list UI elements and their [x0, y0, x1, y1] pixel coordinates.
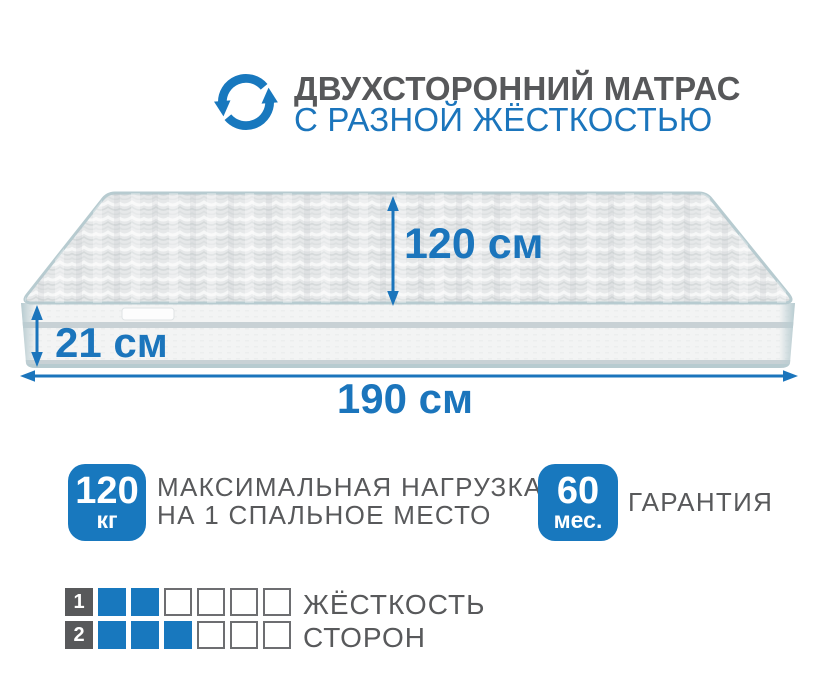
max-load-label-line2: НА 1 СПАЛЬНОЕ МЕСТО: [157, 501, 543, 529]
firmness-cell-empty: [164, 588, 192, 616]
firmness-cells: [98, 621, 291, 649]
warranty-value: 60: [557, 473, 599, 509]
arrow-right-icon: [783, 370, 798, 382]
firmness-cells: [98, 588, 291, 616]
firmness-scale-label: ЖЁСТКОСТЬ СТОРОН: [303, 588, 485, 654]
mattress-infographic: { "header": { "title": "ДВУХСТОРОННИЙ МА…: [0, 0, 816, 700]
firmness-label-line1: ЖЁСТКОСТЬ: [303, 588, 485, 621]
firmness-side-number: 1: [65, 588, 93, 616]
length-dimension: 190 см: [20, 370, 798, 422]
firmness-label-line2: СТОРОН: [303, 621, 485, 654]
warranty-label: ГАРАНТИЯ: [628, 488, 773, 516]
firmness-row-side2: 2: [65, 621, 291, 649]
max-load-label-line1: МАКСИМАЛЬНАЯ НАГРУЗКА: [157, 473, 543, 501]
max-load-value: 120: [75, 473, 138, 509]
firmness-side-number: 2: [65, 621, 93, 649]
length-label: 190 см: [337, 375, 473, 422]
depth-label: 120 см: [404, 220, 543, 268]
height-label: 21 см: [55, 319, 168, 366]
max-load-unit: кг: [96, 509, 117, 532]
firmness-cell-empty: [263, 621, 291, 649]
arrow-left-icon: [20, 370, 35, 382]
warranty-unit: мес.: [554, 509, 603, 532]
warranty-badge: 60 мес.: [538, 464, 618, 541]
rotate-arrows-icon: [210, 66, 282, 138]
firmness-cell-filled: [131, 621, 159, 649]
firmness-row-side1: 1: [65, 588, 291, 616]
firmness-cell-filled: [131, 588, 159, 616]
firmness-scale: 1 2: [65, 588, 291, 649]
firmness-cell-filled: [98, 588, 126, 616]
mattress-illustration: 120 см 21 см 190 см: [0, 170, 816, 430]
firmness-cell-empty: [197, 588, 225, 616]
page-subtitle: С РАЗНОЙ ЖЁСТКОСТЬЮ: [294, 101, 712, 139]
firmness-cell-filled: [98, 621, 126, 649]
firmness-cell-filled: [164, 621, 192, 649]
max-load-label: МАКСИМАЛЬНАЯ НАГРУЗКА НА 1 СПАЛЬНОЕ МЕСТ…: [157, 473, 543, 529]
firmness-cell-empty: [230, 588, 258, 616]
firmness-cell-empty: [230, 621, 258, 649]
firmness-cell-empty: [263, 588, 291, 616]
max-load-badge: 120 кг: [68, 464, 146, 541]
firmness-cell-empty: [197, 621, 225, 649]
